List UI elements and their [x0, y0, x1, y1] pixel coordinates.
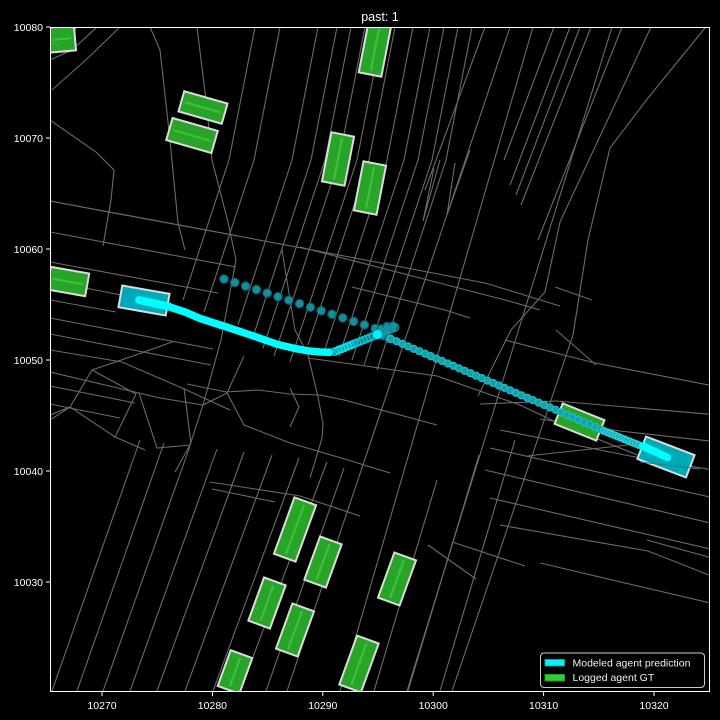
svg-text:past: 1: past: 1 [361, 10, 399, 24]
svg-text:10270: 10270 [87, 700, 116, 712]
svg-text:10060: 10060 [14, 244, 43, 256]
svg-text:Modeled agent prediction: Modeled agent prediction [573, 658, 691, 670]
svg-text:10050: 10050 [14, 355, 43, 367]
svg-text:10030: 10030 [14, 577, 43, 589]
svg-text:10300: 10300 [419, 700, 448, 712]
svg-text:10290: 10290 [308, 700, 337, 712]
svg-text:10310: 10310 [529, 700, 558, 712]
svg-text:10070: 10070 [14, 133, 43, 145]
svg-text:10080: 10080 [14, 22, 43, 34]
svg-text:10280: 10280 [198, 700, 227, 712]
svg-text:Logged agent GT: Logged agent GT [573, 672, 655, 684]
svg-text:10320: 10320 [639, 700, 668, 712]
svg-text:10040: 10040 [14, 466, 43, 478]
